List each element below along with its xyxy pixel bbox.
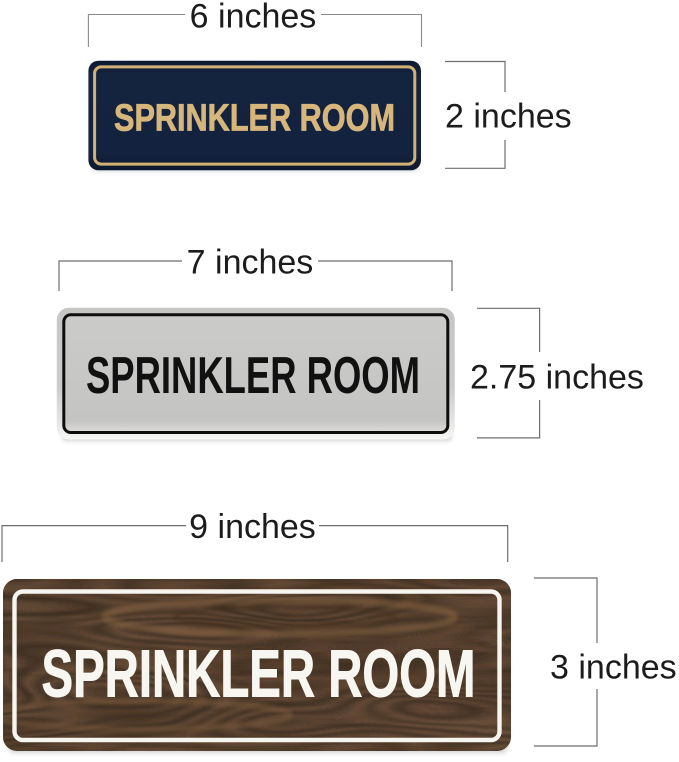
svg-text:2.75 inches: 2.75 inches [470,359,644,397]
svg-text:6 inches: 6 inches [190,0,317,36]
svg-text:7 inches: 7 inches [187,243,314,281]
svg-text:SPRINKLER ROOM: SPRINKLER ROOM [42,636,476,711]
svg-text:9 inches: 9 inches [189,508,316,546]
svg-text:2 inches: 2 inches [445,97,572,135]
svg-text:SPRINKLER ROOM: SPRINKLER ROOM [114,97,395,139]
svg-text:3 inches: 3 inches [550,648,677,686]
svg-text:SPRINKLER ROOM: SPRINKLER ROOM [86,347,420,405]
